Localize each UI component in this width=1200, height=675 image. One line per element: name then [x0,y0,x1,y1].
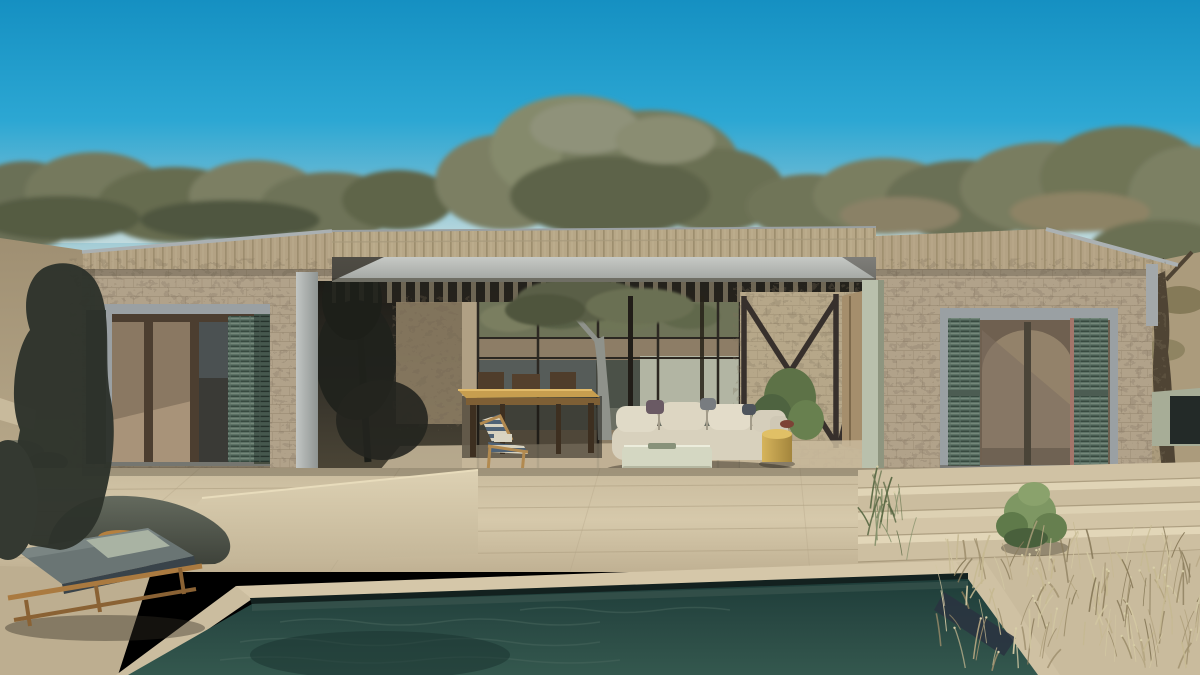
grass-seedhead [893,491,895,493]
door-stile [144,314,153,462]
grass-seedhead [953,627,955,629]
left-shutter-green [228,316,258,462]
grass-seedhead [1190,629,1192,631]
villa-render [0,0,1200,675]
grass-seedhead [1032,595,1034,597]
left-eave-shadow [82,269,332,276]
shade-blob [336,380,428,460]
grass-seedhead [1021,554,1023,556]
right-eave-shadow [876,269,1152,276]
side-table-top [762,429,792,439]
green-towel [648,443,676,449]
dining-table-top [458,390,600,398]
grass-seedhead [1049,556,1051,558]
table-leg [556,404,561,454]
grass-seedhead [1106,568,1108,570]
throw-pillow-navy [742,404,756,415]
grass-seedhead [1182,570,1184,572]
yellow-side-table [759,429,795,468]
sage-column-shade [878,280,884,470]
concrete-fascia [332,257,876,281]
lounger-shadow [5,615,205,641]
succulent-leaves [1018,482,1050,506]
shutter-rail [1074,390,1108,396]
grass-seedhead [1056,608,1058,610]
grass-seedhead [980,617,982,619]
canopy-blob [586,288,694,324]
grass-seedhead [985,616,987,618]
grass-seedhead [1140,639,1142,641]
table-apron [466,398,600,405]
grass-blade [1029,609,1030,649]
grass-seedhead [997,651,999,653]
left-window [86,304,270,469]
table-leg [588,403,594,453]
grass-seedhead [1035,549,1037,551]
tree-blob [510,156,710,236]
grass-seedhead [879,494,881,496]
grass-seedhead [1035,567,1037,569]
grass-seedhead [873,471,875,473]
right-corner-trim [1146,264,1158,326]
canopy-blob [505,294,585,326]
left-sill-shadow [104,462,270,469]
grass-seedhead [1164,564,1166,566]
grass-seedhead [1015,627,1017,629]
table-leg [470,405,476,457]
right-glass-mullion [1024,322,1031,465]
grass-seedhead [1121,635,1123,637]
left-glass-reflection [199,322,228,378]
concrete-pillar-left [296,272,318,470]
grass-seedhead [1048,582,1050,584]
scene-canvas [0,0,1200,675]
fascia-shadow-line [332,278,876,282]
left-shutter-shaded [254,314,270,464]
deck-chair-pillow [494,434,512,442]
grass-seedhead [1108,570,1110,572]
sofa-cushion [660,402,706,430]
stone-villa [82,227,1200,479]
grass-seedhead [1029,553,1031,555]
plant-leaves [788,400,824,440]
right-window [940,308,1118,471]
grass-seedhead [1034,600,1036,602]
tree-blob [615,116,715,164]
shutter-pink-edge [1070,318,1074,466]
grass-seedhead [1153,567,1155,569]
door-stile [190,314,199,462]
grass-seedhead [1138,569,1140,571]
bowl-on-arm [780,420,794,428]
grass-blade [966,586,967,606]
dining-shadow [462,396,602,458]
throw-pillow-gray [700,398,716,410]
grass-seedhead [876,466,878,468]
grass-seedhead [1126,602,1128,604]
fence-shadow-gap [1170,396,1200,444]
shutter-rail [948,390,980,396]
grass-seedhead [1167,585,1169,587]
throw-pillow-mauve [646,400,664,414]
